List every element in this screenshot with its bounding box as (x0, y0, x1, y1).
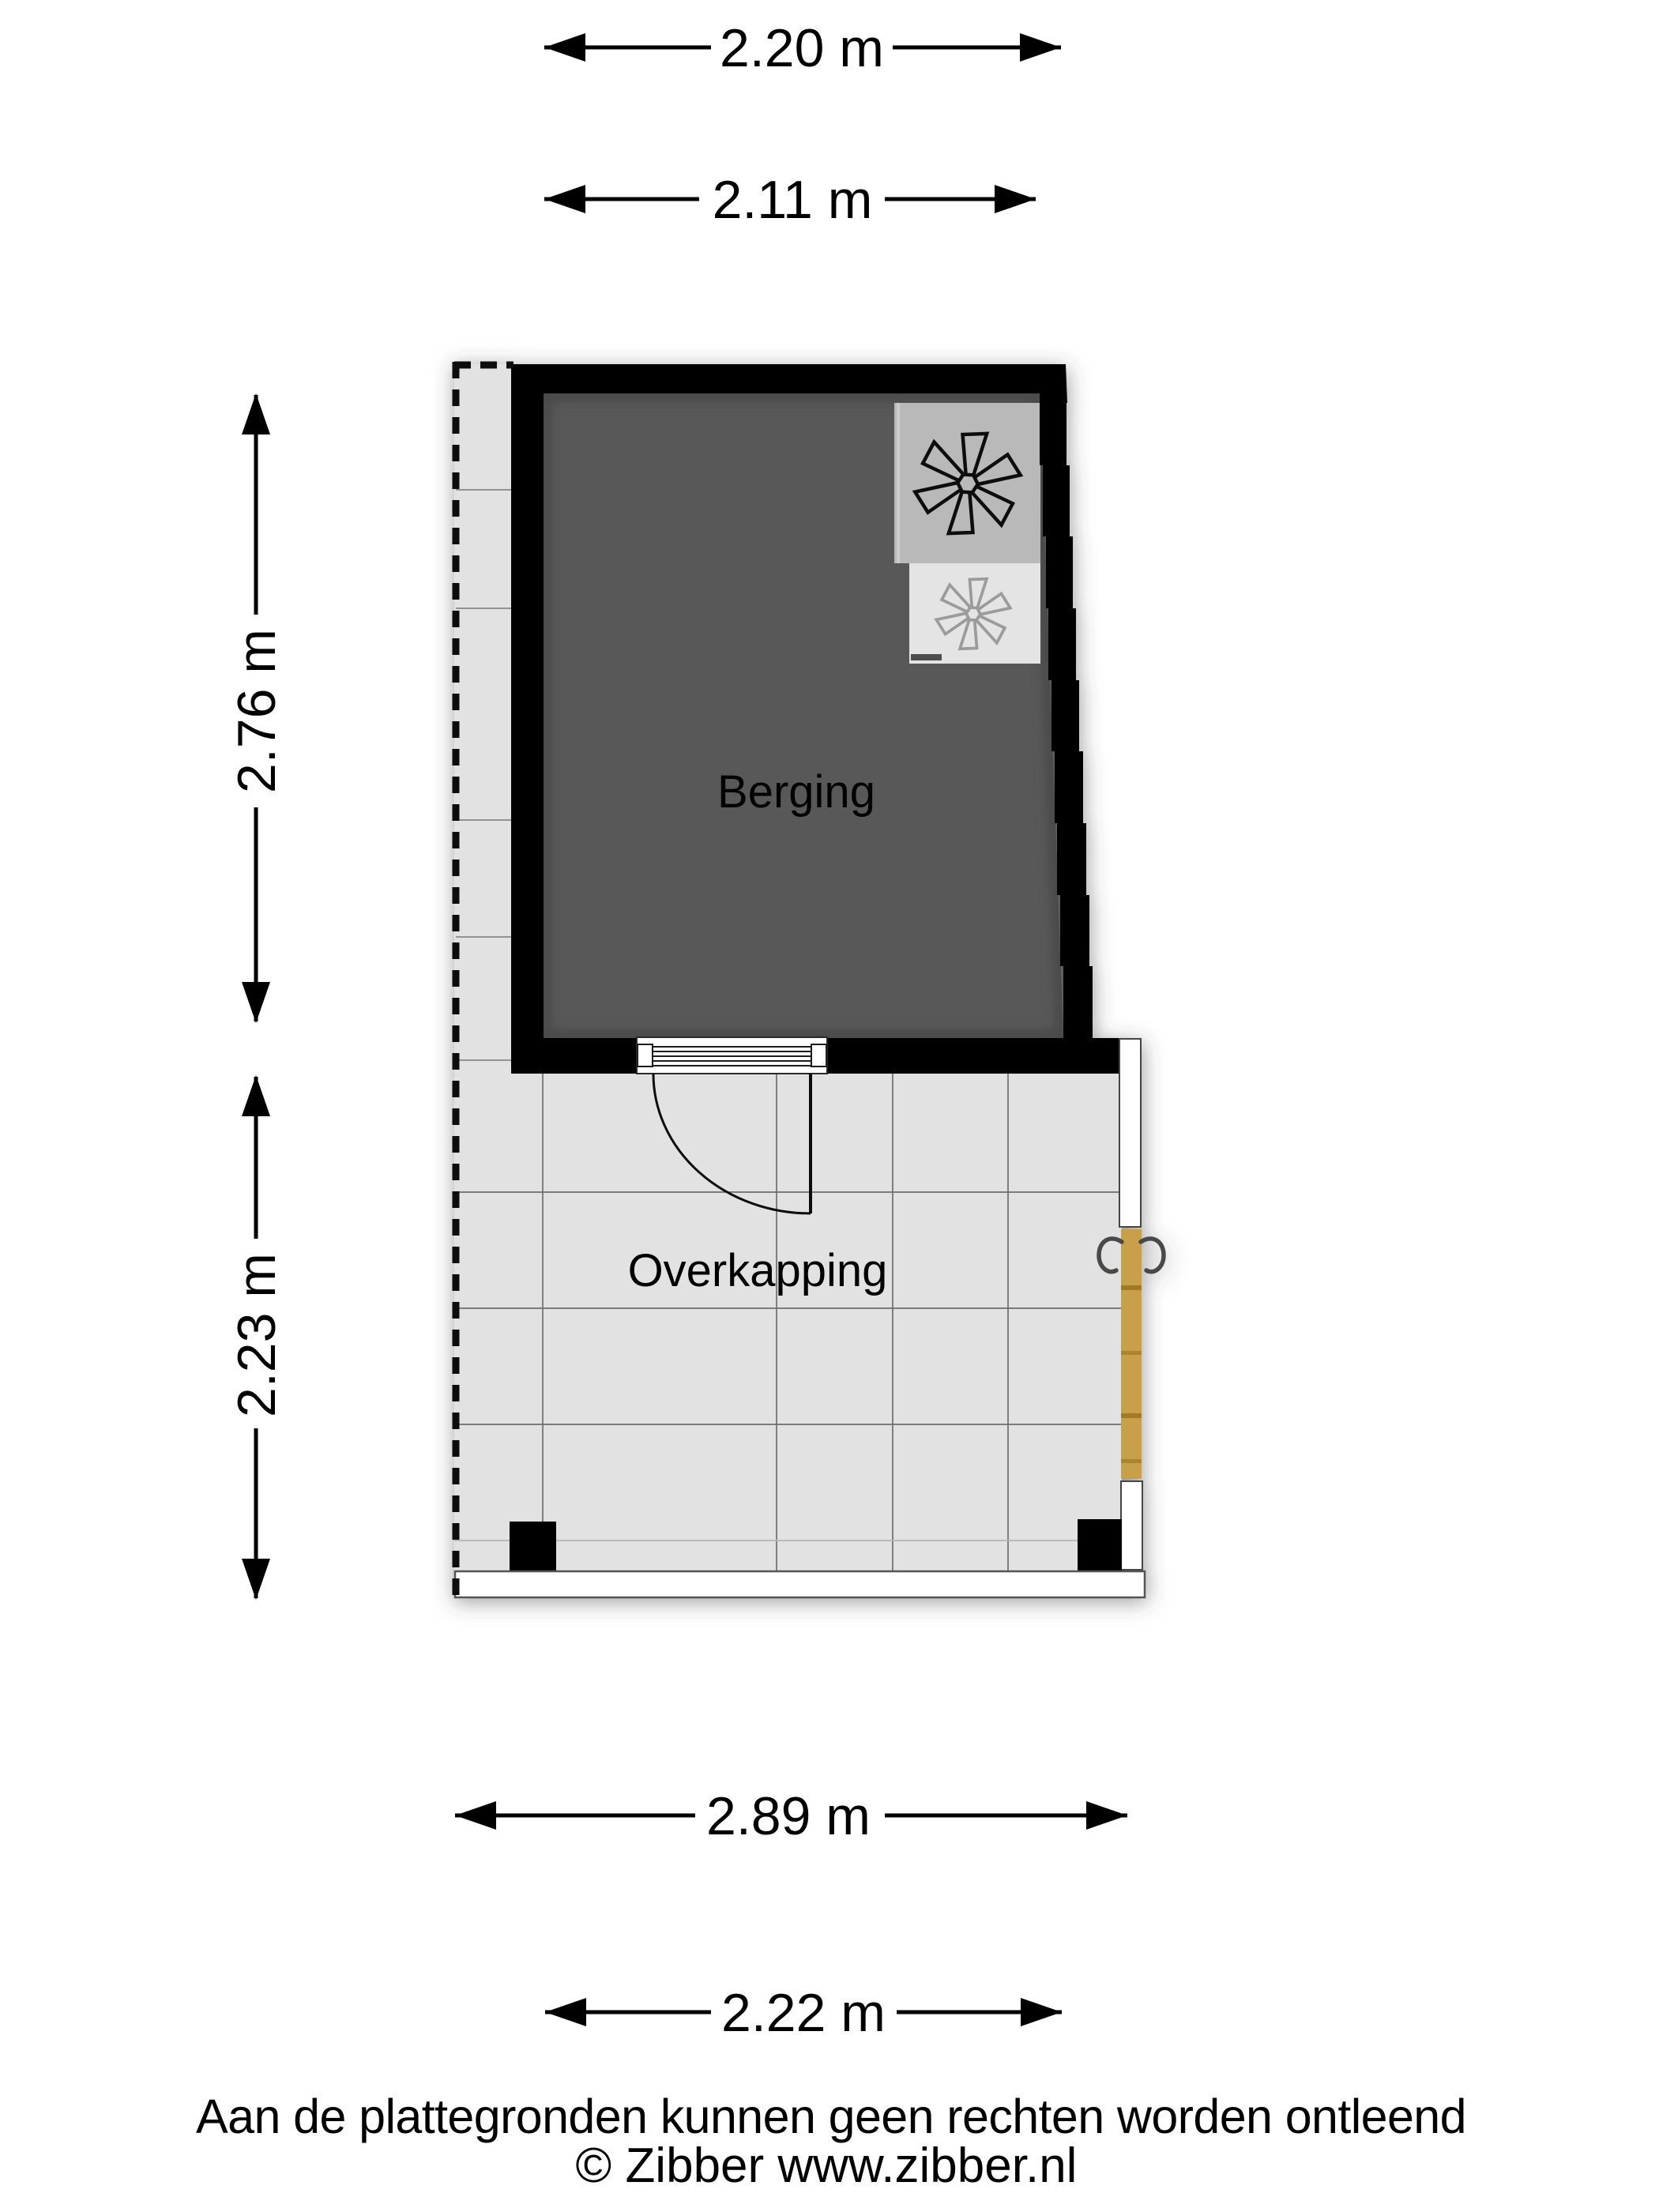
svg-text:Aan de plattegronden kunnen ge: Aan de plattegronden kunnen geen rechten… (196, 2090, 1466, 2143)
svg-text:2.89 m: 2.89 m (706, 1786, 871, 1846)
svg-text:2.23 m: 2.23 m (227, 1253, 287, 1417)
svg-text:2.22 m: 2.22 m (721, 1983, 886, 2043)
svg-text:Overkapping: Overkapping (628, 1245, 888, 1296)
svg-text:2.11 m: 2.11 m (713, 170, 873, 230)
svg-text:Berging: Berging (717, 766, 875, 818)
svg-text:2.76 m: 2.76 m (227, 629, 287, 793)
svg-text:2.20 m: 2.20 m (720, 18, 884, 78)
svg-text:© Zibber www.zibber.nl: © Zibber www.zibber.nl (576, 2139, 1078, 2193)
